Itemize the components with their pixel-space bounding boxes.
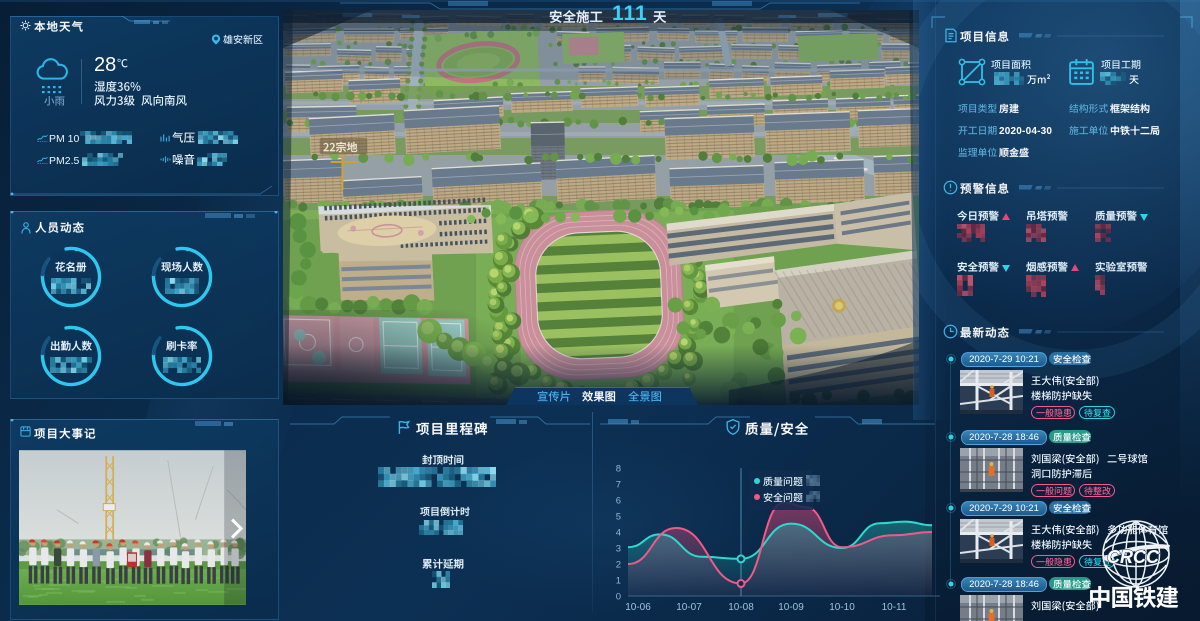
svg-text:3: 3 xyxy=(616,544,621,555)
svg-text:1: 1 xyxy=(616,576,621,587)
svg-text:10-06: 10-06 xyxy=(625,602,651,613)
svg-text:CRCC: CRCC xyxy=(1107,547,1160,567)
svg-text:2: 2 xyxy=(616,560,621,571)
svg-text:5: 5 xyxy=(616,512,621,523)
svg-text:7: 7 xyxy=(616,480,621,491)
svg-text:4: 4 xyxy=(616,528,621,539)
svg-text:10-08: 10-08 xyxy=(728,602,754,613)
svg-text:8: 8 xyxy=(616,464,621,475)
svg-text:10-09: 10-09 xyxy=(778,602,804,613)
svg-text:10-10: 10-10 xyxy=(829,602,855,613)
svg-text:0: 0 xyxy=(616,592,621,603)
svg-text:6: 6 xyxy=(616,496,621,507)
svg-text:10-11: 10-11 xyxy=(882,602,907,613)
svg-text:10-07: 10-07 xyxy=(676,602,702,613)
